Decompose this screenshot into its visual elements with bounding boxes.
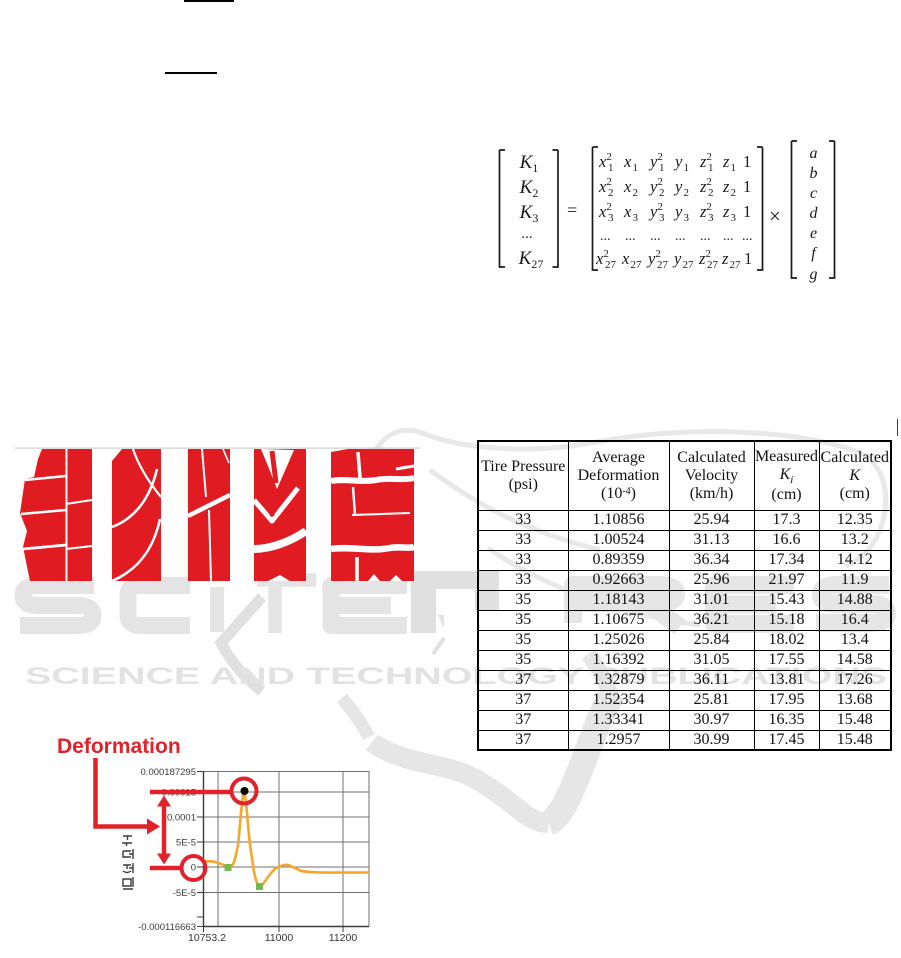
svg-text:z: z: [721, 249, 729, 268]
svg-text:K27: K27: [518, 248, 544, 271]
svg-text:1: 1: [608, 162, 614, 174]
svg-text:g: g: [810, 266, 818, 283]
svg-text:f: f: [811, 245, 818, 262]
svg-text:a: a: [810, 145, 818, 162]
svg-text:3: 3: [633, 212, 639, 224]
svg-text:d: d: [810, 205, 819, 222]
svg-text:5E-5: 5E-5: [176, 838, 196, 849]
svg-text:27: 27: [605, 259, 617, 271]
svg-text:1: 1: [731, 162, 737, 174]
svg-text:...: ...: [600, 229, 611, 244]
svg-text:1: 1: [743, 177, 751, 196]
svg-text:27: 27: [707, 259, 719, 271]
svg-text:K1: K1: [519, 152, 539, 175]
svg-text:11200: 11200: [329, 932, 358, 944]
svg-text:-5E-5: -5E-5: [173, 888, 196, 899]
svg-text:c: c: [810, 185, 817, 202]
svg-text:x: x: [623, 152, 632, 171]
svg-text:x: x: [621, 249, 630, 268]
svg-text:x: x: [623, 202, 632, 221]
svg-text:×: ×: [769, 204, 781, 228]
svg-text:10753.2: 10753.2: [188, 932, 226, 944]
svg-text:3: 3: [708, 212, 714, 224]
svg-text:...: ...: [625, 229, 636, 244]
svg-text:...: ...: [675, 229, 686, 244]
svg-text:1: 1: [743, 152, 751, 171]
svg-text:2: 2: [731, 187, 737, 199]
svg-text:b: b: [810, 165, 818, 182]
svg-text:1: 1: [708, 162, 714, 174]
svg-text:...: ...: [723, 229, 734, 244]
svg-text:...: ...: [650, 229, 661, 244]
svg-text:2: 2: [608, 187, 614, 199]
svg-text:...: ...: [742, 229, 753, 244]
svg-text:27: 27: [631, 259, 643, 271]
svg-text:x: x: [623, 177, 632, 196]
svg-text:2: 2: [708, 187, 714, 199]
svg-text:y: y: [672, 249, 682, 268]
svg-text:1: 1: [743, 202, 751, 221]
svg-text:Deformation: Deformation: [57, 735, 181, 758]
svg-text:z: z: [722, 152, 730, 171]
svg-text:0.000187295: 0.000187295: [141, 767, 196, 778]
svg-text:K2: K2: [519, 177, 539, 200]
svg-text:27: 27: [683, 259, 695, 271]
svg-text:1: 1: [684, 162, 690, 174]
svg-text:1: 1: [633, 162, 639, 174]
svg-text:...: ...: [700, 229, 711, 244]
svg-text:1: 1: [744, 249, 752, 268]
svg-text:1: 1: [659, 162, 665, 174]
svg-text:y: y: [673, 202, 683, 221]
svg-text:11000: 11000: [265, 932, 294, 944]
svg-text:y: y: [673, 152, 683, 171]
svg-text:27: 27: [657, 259, 669, 271]
svg-text:3: 3: [659, 212, 665, 224]
svg-text:0.0001: 0.0001: [167, 813, 196, 824]
svg-text:K3: K3: [519, 202, 539, 225]
svg-text:y: y: [673, 177, 683, 196]
svg-text:0: 0: [191, 863, 196, 874]
svg-text:e: e: [810, 225, 817, 242]
svg-text:z: z: [722, 177, 730, 196]
svg-text:3: 3: [684, 212, 690, 224]
svg-text:2: 2: [684, 187, 690, 199]
svg-text:=: =: [567, 200, 577, 220]
svg-text:z: z: [722, 202, 730, 221]
svg-text:2: 2: [633, 187, 639, 199]
svg-text:3: 3: [608, 212, 614, 224]
svg-text:27: 27: [730, 259, 742, 271]
svg-text:3: 3: [731, 212, 737, 224]
svg-text:2: 2: [659, 187, 665, 199]
svg-text:...: ...: [521, 226, 532, 242]
